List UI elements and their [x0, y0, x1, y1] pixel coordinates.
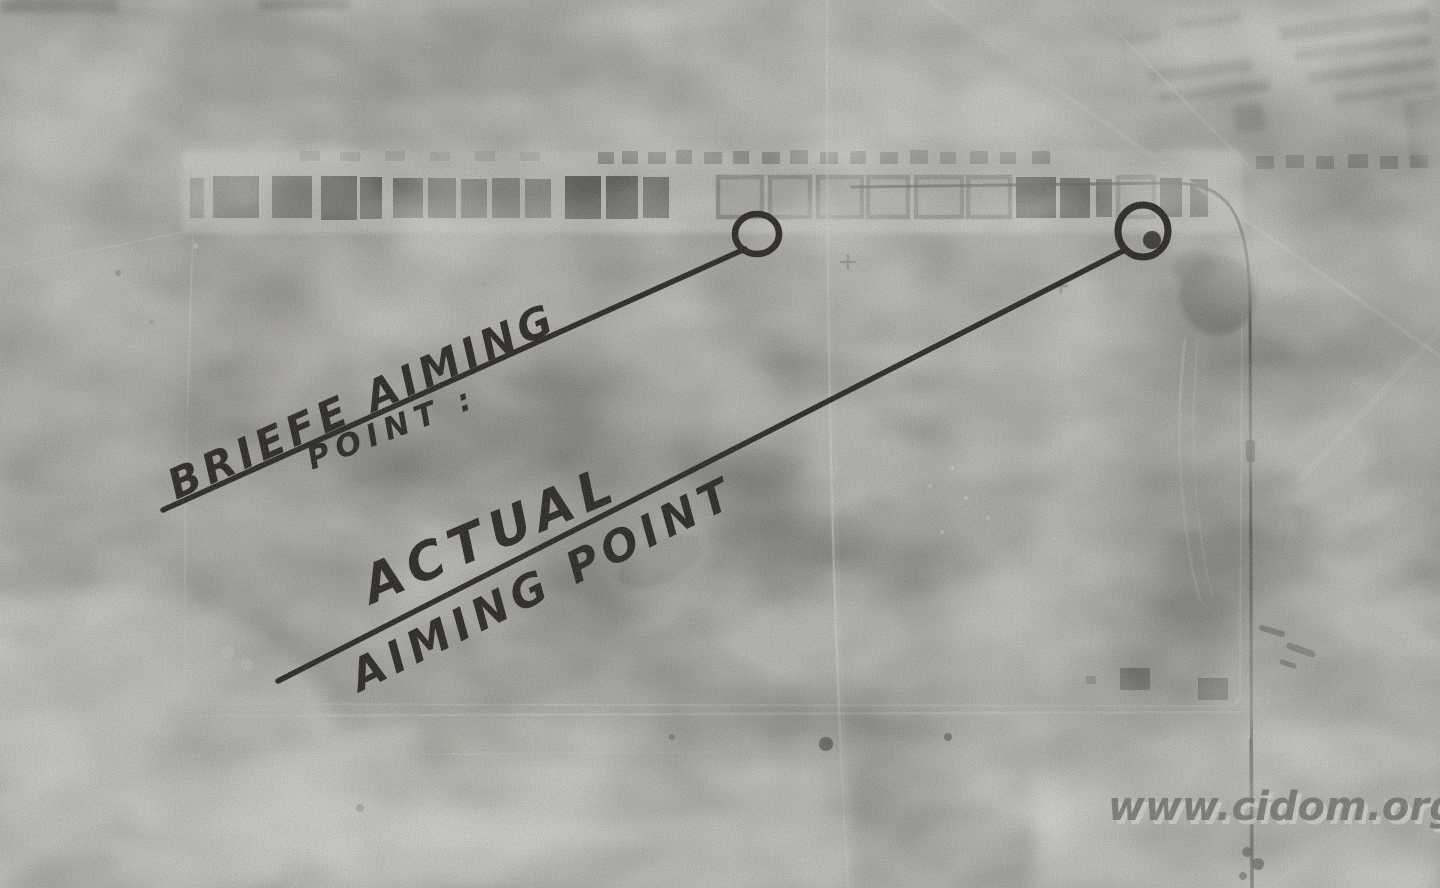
aerial-photo: BRIEFE AIMING POINT : ACTUAL AIMING POIN…: [0, 0, 1440, 888]
aerial-photo-canvas: BRIEFE AIMING POINT : ACTUAL AIMING POIN…: [0, 0, 1440, 888]
grain-light-overlay: [0, 0, 1440, 888]
